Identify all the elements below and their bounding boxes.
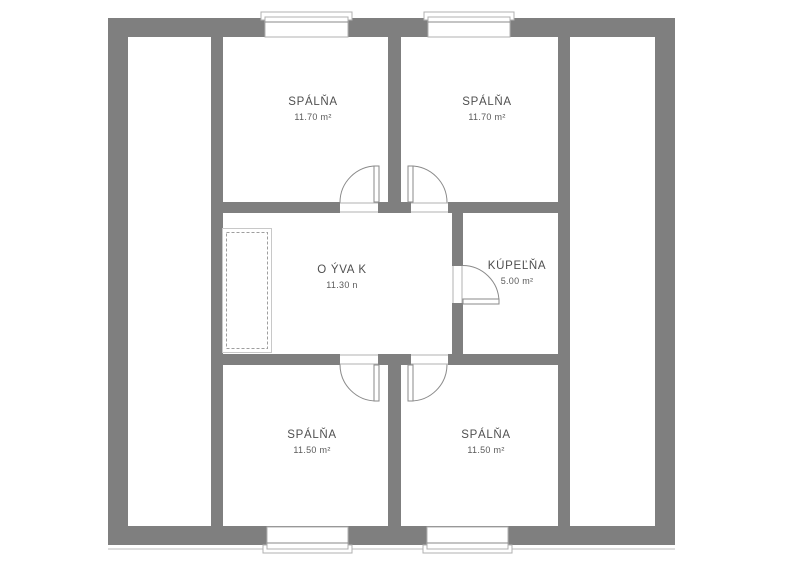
wall-living-top-mid-seg (378, 202, 411, 213)
door-leaf-bottom-left-bedroom (374, 365, 379, 401)
window-frame (267, 527, 348, 549)
door-leaf-bottom-right-bedroom (408, 365, 413, 401)
closet-outer-line (223, 229, 272, 353)
wall-living-bottom-left-seg (211, 354, 340, 365)
closet-dashed-line (227, 233, 268, 349)
window-top-right (424, 12, 514, 37)
outer-wall-bottom (108, 526, 675, 545)
door-leaf-top-right-bedroom (408, 166, 413, 202)
wall-left-corridor (211, 37, 223, 526)
windows (261, 12, 514, 553)
wall-bathroom-upper-seg (452, 213, 463, 266)
wall-living-bottom-right-seg (448, 354, 558, 365)
outer-wall-right (655, 18, 675, 545)
wall-right-corridor (558, 37, 570, 526)
door-arc-top-right-bedroom (411, 166, 448, 203)
floor-plan-page: SPÁLŇA 11.70 m² SPÁLŇA 11.70 m² O ÝVA K … (0, 0, 800, 565)
door-arc-bottom-left-bedroom (340, 365, 377, 402)
wall-living-top-right-seg (448, 202, 558, 213)
window-frame (265, 17, 348, 37)
door-arc-top-left-bedroom (340, 166, 377, 203)
window-frame (427, 527, 508, 549)
wall-bathroom-lower-seg (452, 303, 463, 354)
door-thresholds (340, 203, 462, 364)
floor-plan-drawing (0, 0, 800, 565)
outer-wall-left (108, 18, 128, 545)
closet-outline (223, 229, 272, 353)
doors (340, 166, 499, 401)
window-bottom-right (423, 527, 512, 553)
outer-wall-top (108, 18, 675, 37)
door-arc-bathroom (463, 266, 500, 302)
door-leaf-top-left-bedroom (374, 166, 379, 202)
wall-between-bottom-bedrooms (388, 364, 401, 526)
wall-living-top-left-seg (211, 202, 340, 213)
door-arc-bottom-right-bedroom (411, 365, 448, 402)
window-frame (428, 17, 510, 37)
window-top-left (261, 12, 352, 37)
window-bottom-left (263, 527, 352, 553)
wall-between-top-bedrooms (388, 37, 401, 203)
interior-walls (211, 37, 570, 526)
wall-living-bottom-mid-seg (378, 354, 411, 365)
door-leaf-bathroom (463, 299, 499, 304)
